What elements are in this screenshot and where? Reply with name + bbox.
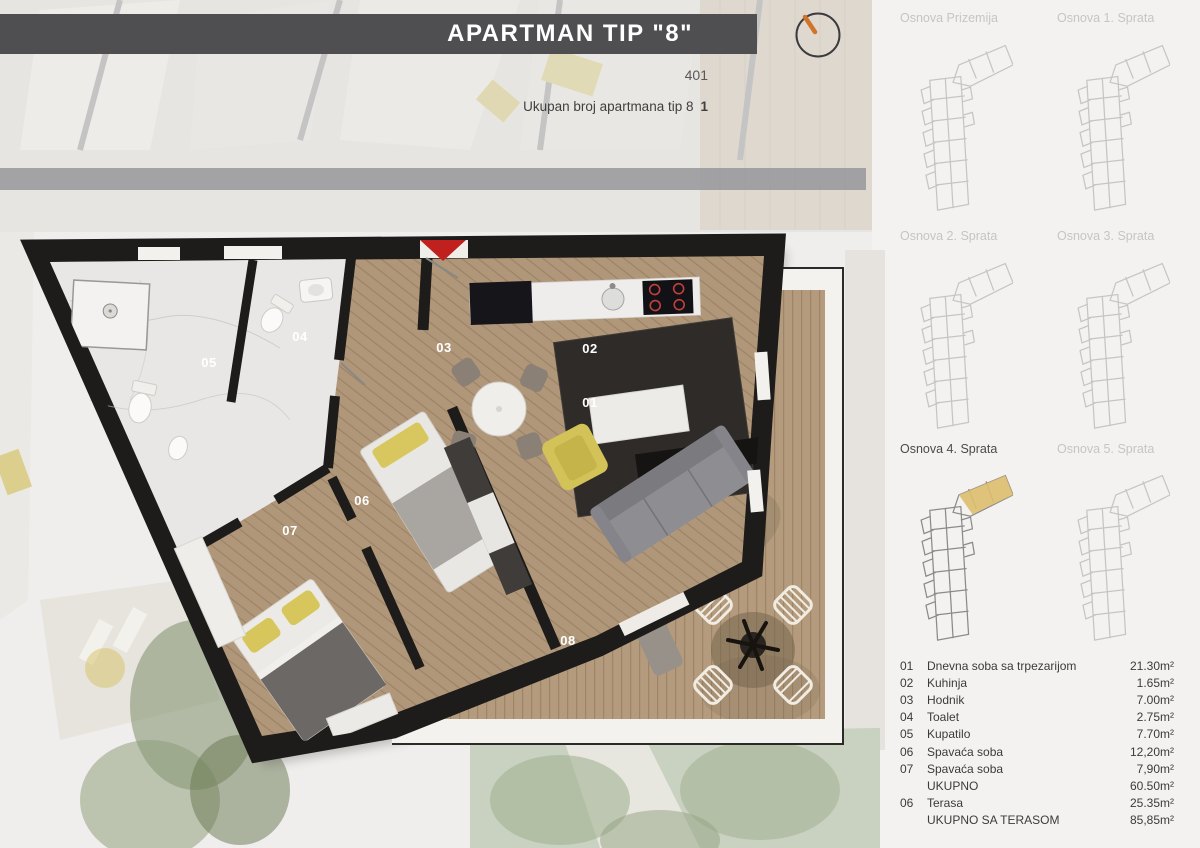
stove: [642, 279, 693, 315]
unit-number: 401: [560, 67, 708, 83]
room-label: 07: [282, 523, 297, 538]
room-label: 02: [582, 341, 597, 356]
sidebar-item-sprat-4-active[interactable]: Osnova 4. Sprata: [900, 442, 997, 456]
legend-row: 03Hodnik7.00m²: [900, 691, 1174, 708]
apartment-count-line: Ukupan broj apartmana tip 81: [420, 99, 708, 114]
title-bar: APARTMAN TIP "8": [0, 14, 757, 54]
apartment-count-label: Ukupan broj apartmana tip 8: [523, 99, 693, 114]
legend-row: 05Kupatilo7.70m²: [900, 726, 1174, 743]
sidebar-item-sprat-5[interactable]: Osnova 5. Sprata: [1057, 442, 1154, 456]
room-label: 05: [201, 355, 216, 370]
sidebar-item-prizemije[interactable]: Osnova Prizemija: [900, 11, 998, 25]
room-label: 01: [582, 395, 597, 410]
legend-row-total: UKUPNO60.50m²: [900, 777, 1174, 794]
shower: [70, 280, 149, 350]
sink: [299, 277, 333, 302]
thumbnail-sprat-3[interactable]: [1050, 250, 1174, 432]
brochure-page: 01 02 03 04 05 06 07 08 APARTMAN TIP "8"…: [0, 0, 1200, 848]
legend-row: 02Kuhinja1.65m²: [900, 674, 1174, 691]
legend-row: 04Toalet2.75m²: [900, 709, 1174, 726]
thumbnail-sprat-5[interactable]: [1050, 462, 1174, 644]
legend-row-grand-total: UKUPNO SA TERASOM85,85m²: [900, 812, 1174, 829]
legend-row: 06Spavaća soba12,20m²: [900, 743, 1174, 760]
compass-needle: [805, 17, 815, 32]
room-label: 06: [354, 493, 369, 508]
page-title: APARTMAN TIP "8": [447, 14, 693, 54]
thumbnail-sprat-4-active[interactable]: [893, 462, 1017, 644]
legend-row: 01Dnevna soba sa trpezarijom21.30m²: [900, 657, 1174, 674]
room-label: 08: [560, 633, 575, 648]
room-label: 04: [292, 329, 308, 344]
apartment-count-value: 1: [700, 99, 708, 114]
compass-icon: [792, 9, 844, 61]
thumbnail-prizemije[interactable]: [893, 32, 1017, 214]
sidebar-item-sprat-2[interactable]: Osnova 2. Sprata: [900, 229, 997, 243]
thumbnail-sprat-2[interactable]: [893, 250, 1017, 432]
room-label: 03: [436, 340, 451, 355]
thumbnail-sprat-1[interactable]: [1050, 32, 1174, 214]
legend-row: 07Spavaća soba7,90m²: [900, 760, 1174, 777]
sidebar-item-sprat-3[interactable]: Osnova 3. Sprata: [1057, 229, 1154, 243]
legend-row: 06Terasa25.35m²: [900, 795, 1174, 812]
sidebar-item-sprat-1[interactable]: Osnova 1. Sprata: [1057, 11, 1154, 25]
area-legend: 01Dnevna soba sa trpezarijom21.30m² 02Ku…: [900, 657, 1174, 829]
